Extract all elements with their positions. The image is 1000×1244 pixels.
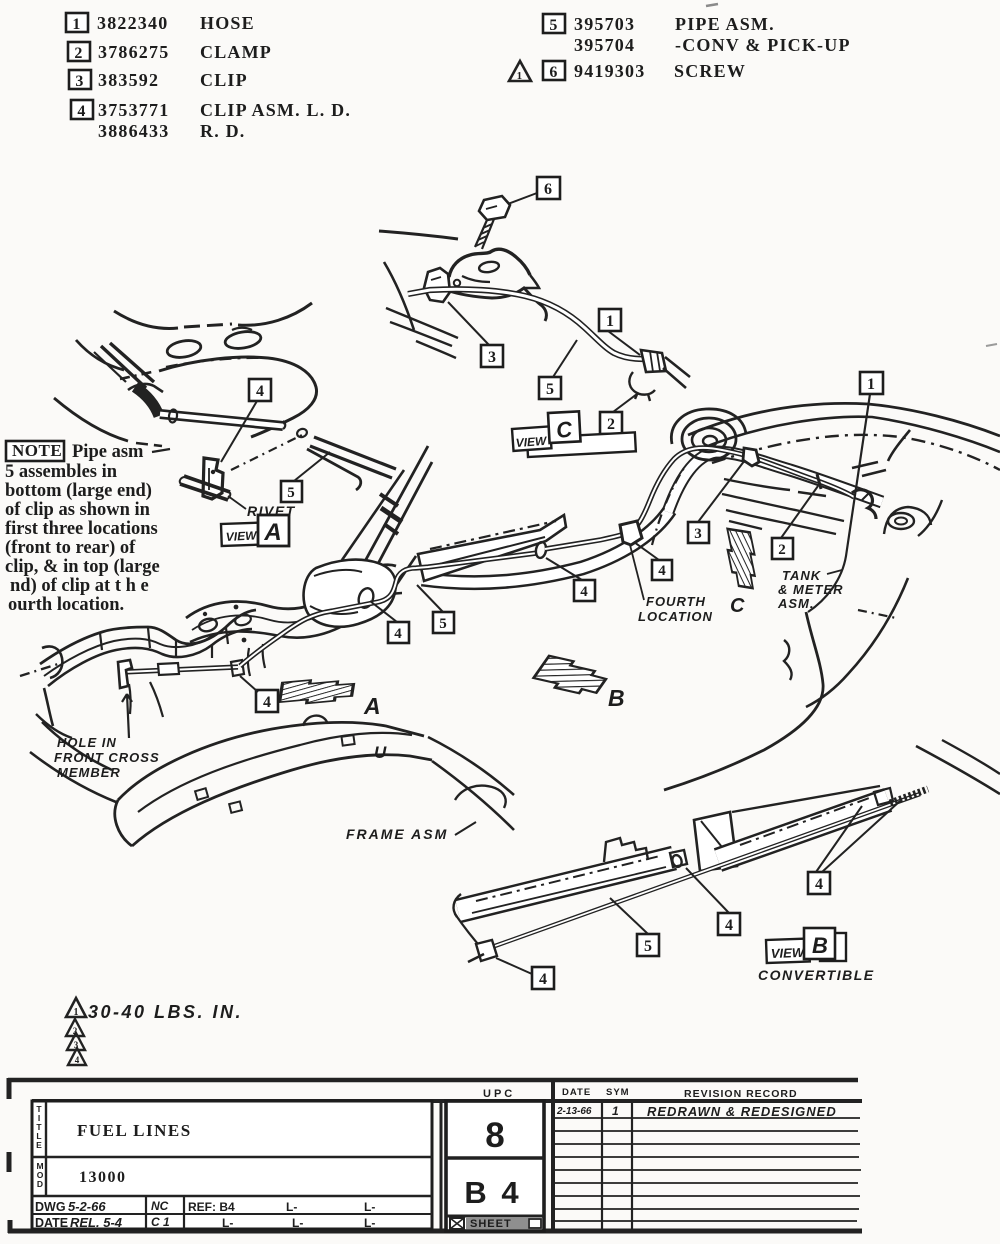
- svg-text:NOTE: NOTE: [12, 441, 62, 460]
- svg-text:4: 4: [725, 917, 733, 934]
- svg-text:5: 5: [644, 938, 652, 955]
- svg-text:B: B: [812, 933, 828, 958]
- svg-text:R. D.: R. D.: [200, 121, 246, 141]
- svg-text:Pipe asm: Pipe asm: [72, 442, 144, 462]
- svg-text:4: 4: [815, 876, 823, 893]
- svg-text:U: U: [374, 743, 387, 762]
- svg-text:FRAME ASM: FRAME ASM: [346, 826, 448, 842]
- svg-text:PIPE ASM.: PIPE ASM.: [675, 14, 775, 34]
- svg-text:DWG: DWG: [35, 1200, 66, 1214]
- svg-text:B: B: [608, 685, 625, 711]
- svg-text:1: 1: [517, 70, 524, 82]
- svg-text:CONVERTIBLE: CONVERTIBLE: [758, 967, 875, 983]
- svg-text:2-13-66: 2-13-66: [556, 1106, 592, 1117]
- svg-text:395703: 395703: [574, 14, 635, 34]
- svg-text:5-2-66: 5-2-66: [68, 1199, 106, 1214]
- svg-text:clip, & in top (large: clip, & in top (large: [5, 557, 160, 577]
- svg-text:A: A: [263, 519, 281, 546]
- svg-text:1: 1: [74, 1007, 79, 1018]
- svg-text:5: 5: [439, 616, 447, 632]
- svg-text:B 4: B 4: [464, 1175, 521, 1210]
- svg-text:C 1: C 1: [151, 1215, 170, 1229]
- svg-text:of clip as shown in: of clip as shown in: [5, 500, 151, 520]
- svg-text:HOLE IN: HOLE IN: [57, 735, 117, 750]
- svg-text:LOCATION: LOCATION: [638, 609, 713, 624]
- svg-text:3786275: 3786275: [98, 42, 169, 62]
- svg-text:1: 1: [72, 16, 81, 33]
- svg-text:13000: 13000: [79, 1169, 127, 1186]
- svg-text:FRONT CROSS: FRONT CROSS: [54, 750, 160, 765]
- svg-text:UPC: UPC: [483, 1088, 515, 1100]
- svg-text:5: 5: [549, 17, 558, 34]
- svg-text:5: 5: [546, 381, 554, 398]
- svg-text:4: 4: [658, 563, 666, 579]
- svg-text:L-: L-: [364, 1200, 375, 1214]
- svg-text:VIEW: VIEW: [771, 945, 806, 961]
- svg-text:6: 6: [549, 64, 558, 81]
- svg-text:395704: 395704: [574, 35, 635, 55]
- svg-text:L-: L-: [286, 1200, 297, 1214]
- svg-text:5: 5: [287, 485, 295, 501]
- svg-text:D: D: [37, 1179, 43, 1189]
- svg-text:ourth location.: ourth location.: [8, 595, 124, 615]
- svg-text:DATE: DATE: [35, 1216, 68, 1230]
- svg-text:5 assembles in: 5 assembles in: [5, 462, 118, 482]
- svg-text:SCREW: SCREW: [674, 61, 746, 81]
- svg-text:1: 1: [867, 376, 875, 393]
- svg-text:REF: B4: REF: B4: [188, 1200, 235, 1214]
- svg-text:bottom (large end): bottom (large end): [5, 481, 152, 501]
- svg-text:2: 2: [778, 542, 786, 558]
- svg-text:REDRAWN & REDESIGNED: REDRAWN & REDESIGNED: [647, 1104, 837, 1119]
- svg-text:E: E: [36, 1140, 42, 1150]
- svg-text:1: 1: [612, 1104, 619, 1118]
- svg-text:3886433: 3886433: [98, 121, 169, 141]
- svg-text:(front to rear) of: (front to rear) of: [5, 538, 136, 558]
- svg-text:3: 3: [694, 526, 702, 542]
- svg-text:2: 2: [74, 45, 83, 62]
- svg-text:4: 4: [580, 584, 588, 600]
- svg-text:REL. 5-4: REL. 5-4: [70, 1215, 123, 1230]
- svg-text:CLIP ASM. L. D.: CLIP ASM. L. D.: [200, 100, 351, 120]
- svg-text:1: 1: [606, 313, 614, 330]
- svg-text:C: C: [730, 595, 745, 617]
- svg-text:first three locations: first three locations: [5, 519, 158, 539]
- svg-text:L-: L-: [292, 1216, 303, 1230]
- svg-text:3822340: 3822340: [97, 13, 168, 33]
- svg-text:4: 4: [75, 1055, 80, 1065]
- svg-text:FOURTH: FOURTH: [646, 594, 706, 609]
- svg-text:4: 4: [77, 103, 86, 120]
- svg-text:-CONV & PICK-UP: -CONV & PICK-UP: [675, 35, 851, 55]
- svg-text:4: 4: [256, 383, 264, 400]
- svg-text:NC: NC: [151, 1199, 169, 1213]
- svg-text:2: 2: [607, 416, 615, 433]
- svg-text:4: 4: [539, 971, 547, 988]
- svg-text:L-: L-: [222, 1216, 233, 1230]
- svg-text:TANK: TANK: [782, 568, 822, 583]
- svg-text:DATE: DATE: [562, 1087, 591, 1098]
- svg-text:3: 3: [75, 73, 84, 90]
- svg-text:383592: 383592: [98, 70, 159, 90]
- svg-text:L-: L-: [364, 1216, 375, 1230]
- svg-text:FUEL LINES: FUEL LINES: [77, 1121, 192, 1140]
- svg-text:4: 4: [394, 626, 402, 642]
- svg-text:ASM.: ASM.: [777, 596, 815, 611]
- svg-text:VIEW: VIEW: [515, 434, 548, 450]
- svg-text:& METER: & METER: [778, 582, 844, 597]
- svg-text:4: 4: [263, 694, 271, 711]
- svg-text:MEMBER: MEMBER: [57, 765, 121, 780]
- svg-text:9419303: 9419303: [574, 61, 645, 81]
- svg-text:HOSE: HOSE: [200, 13, 255, 33]
- svg-text:CLAMP: CLAMP: [200, 42, 272, 62]
- svg-text:VIEW: VIEW: [225, 528, 258, 544]
- svg-text:30-40 LBS. IN.: 30-40 LBS. IN.: [88, 1002, 243, 1022]
- svg-text:nd) of clip at t h e: nd) of clip at t h e: [10, 576, 149, 596]
- svg-text:3753771: 3753771: [98, 100, 169, 120]
- svg-text:SYM: SYM: [606, 1087, 630, 1098]
- svg-text:REVISION RECORD: REVISION RECORD: [684, 1088, 798, 1100]
- svg-text:CLIP: CLIP: [200, 70, 248, 90]
- svg-text:3: 3: [488, 349, 496, 366]
- svg-text:SHEET: SHEET: [470, 1218, 512, 1230]
- svg-text:6: 6: [544, 181, 552, 198]
- svg-text:A: A: [363, 693, 381, 719]
- svg-text:8: 8: [485, 1116, 504, 1155]
